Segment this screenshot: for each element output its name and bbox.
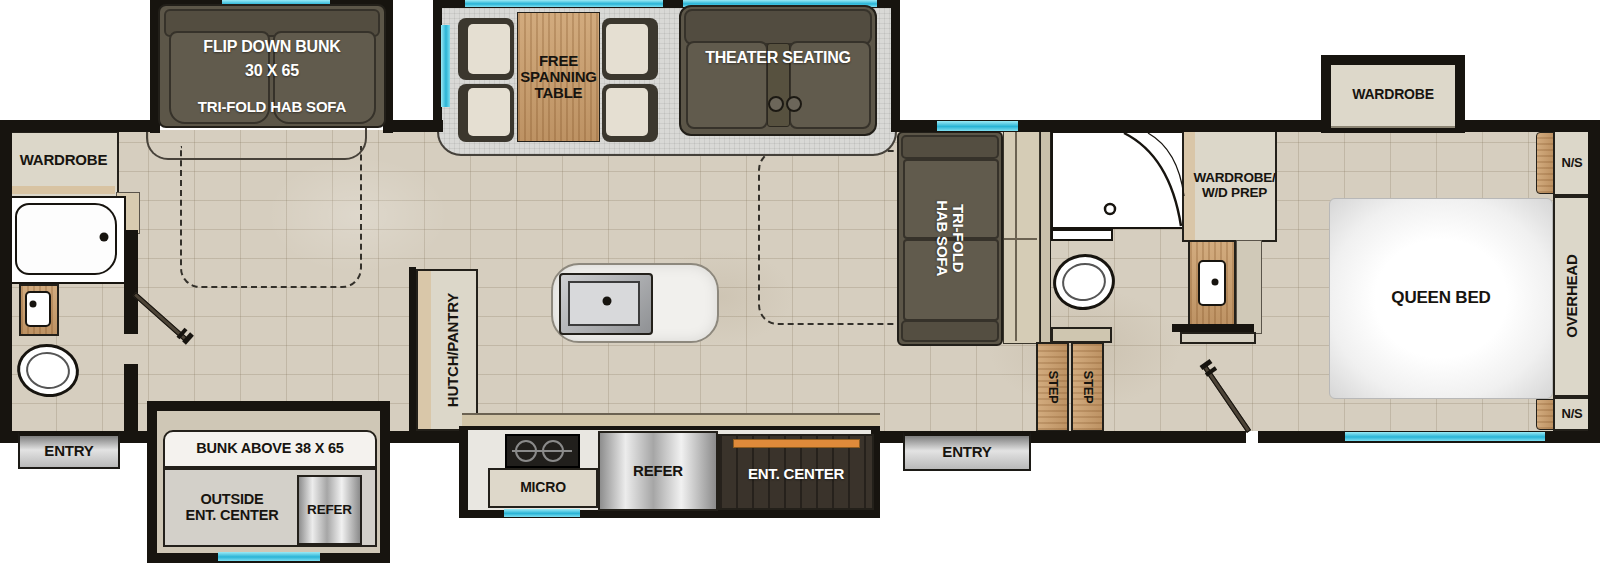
dinette-chair-2 bbox=[458, 84, 514, 142]
rear-vanity-sink bbox=[25, 291, 51, 327]
midsofa-platform-line-v bbox=[1015, 132, 1017, 341]
rear-bath-wall-upper bbox=[124, 230, 138, 334]
outside-refer-label: REFER bbox=[297, 475, 362, 545]
midbath-wall-bottom bbox=[1051, 327, 1112, 343]
theater-label: THEATER SEATING bbox=[679, 48, 877, 68]
queen-bed-label: QUEEN BED bbox=[1329, 198, 1553, 399]
midbath-toilet-bowl bbox=[1059, 259, 1109, 304]
rv-floorplan: WARDROBE HUTCH/PANTRY TRI-FOLD bbox=[0, 0, 1600, 563]
dinette-chair-3 bbox=[602, 18, 658, 80]
wall-top-d bbox=[1465, 120, 1600, 132]
dinette-chair-2-cushion bbox=[468, 88, 510, 136]
ent-center-accent bbox=[733, 439, 860, 448]
step-left-label: STEP bbox=[1036, 342, 1069, 432]
rear-vanity bbox=[19, 284, 59, 336]
bathtub bbox=[8, 196, 126, 284]
dinette-chair-1-cushion bbox=[468, 24, 510, 74]
lower-bunk-label: BUNK ABOVE 38 X 65 bbox=[163, 430, 377, 468]
flip-bunk-sofa-label: TRI-FOLD HAB SOFA bbox=[158, 98, 386, 116]
overhead-label: OVERHEAD bbox=[1553, 196, 1591, 397]
dinette-slide-wall-right bbox=[891, 0, 900, 132]
theater-back bbox=[684, 9, 872, 45]
flip-bunk-label-1: FLIP DOWN BUNK bbox=[158, 38, 386, 56]
theater-seating bbox=[679, 5, 877, 136]
wall-bottom-b bbox=[388, 431, 465, 443]
kitchen-refer-label: REFER bbox=[598, 431, 718, 511]
wardrobe-wd-label: WARDROBE/ W/D PREP bbox=[1192, 130, 1277, 242]
hutch-wall-line bbox=[409, 267, 416, 431]
midsofa-platform-line-h bbox=[1004, 238, 1037, 240]
midsofa-label: TRI-FOLD HAB SOFA bbox=[897, 131, 1003, 346]
hutch-pantry-label: HUTCH/PANTRY bbox=[429, 269, 478, 431]
window-kitchen-slide bbox=[504, 509, 580, 517]
window-bottom-bedroom bbox=[1345, 432, 1545, 441]
outside-ent-center-label: OUTSIDE ENT. CENTER bbox=[168, 470, 296, 545]
bedroom-dresser-bar bbox=[1172, 324, 1254, 332]
window-lower-slide bbox=[218, 552, 320, 561]
flip-bunk-label-2: 30 X 65 bbox=[158, 62, 386, 80]
dinette-chair-4-cushion bbox=[606, 88, 648, 136]
dinette-table-label: FREE SPANNING TABLE bbox=[517, 12, 600, 142]
micro-label: MICRO bbox=[488, 468, 598, 508]
midbath-counter-edge bbox=[1236, 240, 1262, 334]
bunk-slide-travel-dashed bbox=[180, 146, 362, 288]
window-dinette-1 bbox=[465, 0, 663, 7]
ns-top-wood bbox=[1536, 132, 1554, 194]
dinette-chair-3-cushion bbox=[606, 24, 648, 74]
entry-step-rear: ENTRY bbox=[18, 431, 120, 469]
window-top-bath bbox=[937, 121, 1018, 131]
midbath-vanity bbox=[1188, 240, 1236, 330]
rear-toilet-bowl bbox=[24, 349, 73, 392]
island-sink bbox=[559, 273, 653, 335]
bedroom-dresser bbox=[1180, 332, 1256, 344]
island-sink-basin bbox=[568, 281, 640, 326]
ns-bottom-label: N/S bbox=[1553, 397, 1591, 431]
wall-left bbox=[0, 120, 12, 443]
rear-wardrobe-label: WARDROBE bbox=[8, 131, 119, 189]
dinette-chair-4 bbox=[602, 84, 658, 142]
wall-top-a bbox=[0, 120, 155, 132]
step-right-label: STEP bbox=[1071, 342, 1104, 432]
kitchen-island bbox=[551, 263, 719, 343]
ent-center-label: ENT. CENTER bbox=[718, 448, 874, 500]
ns-top-label: N/S bbox=[1553, 130, 1591, 196]
ns-bottom-wood bbox=[1536, 399, 1554, 430]
dinette-chair-1 bbox=[458, 18, 514, 80]
midsofa-platform bbox=[1003, 131, 1040, 344]
entry-step-main: ENTRY bbox=[903, 431, 1031, 471]
bathtub-basin bbox=[15, 203, 117, 275]
shower-threshold bbox=[1051, 229, 1113, 241]
shower bbox=[1051, 131, 1186, 229]
cooktop bbox=[505, 434, 580, 468]
midbath-wall-left bbox=[1040, 131, 1051, 344]
midbath-vanity-sink bbox=[1198, 260, 1226, 306]
window-dinette-side bbox=[441, 25, 450, 107]
rear-bath-wall-lower bbox=[124, 364, 138, 431]
wardrobe-slide-label: WARDROBE bbox=[1331, 65, 1455, 125]
wall-right bbox=[1588, 120, 1600, 443]
